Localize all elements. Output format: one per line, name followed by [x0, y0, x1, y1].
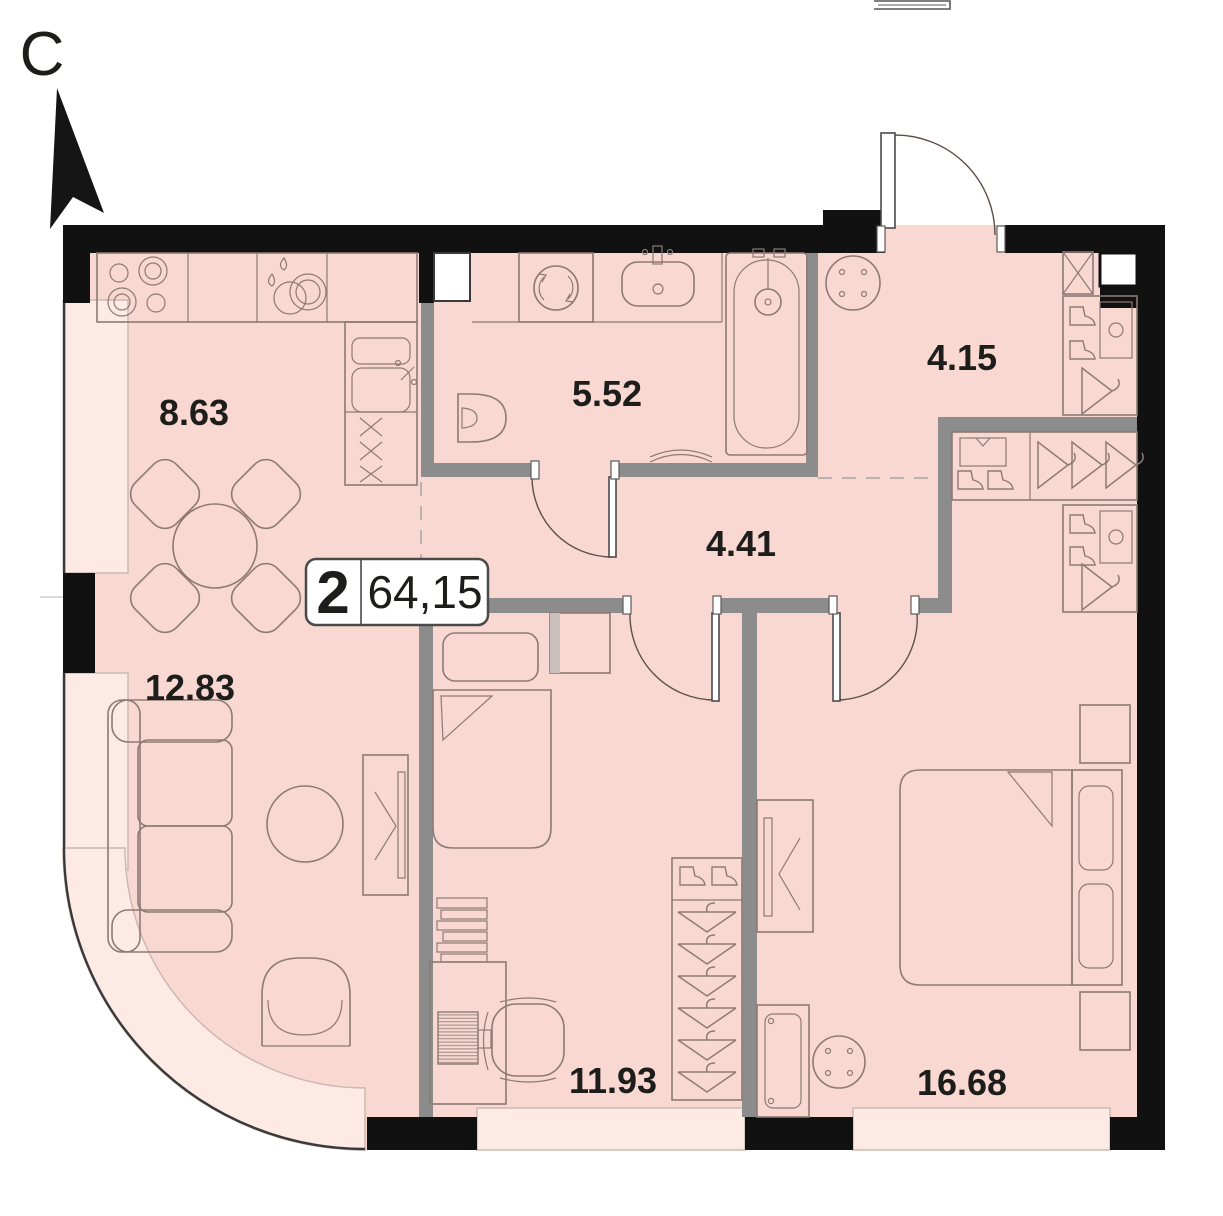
- room-label-bedroom-small: 11.93: [569, 1060, 657, 1101]
- duct-bathroom: [434, 253, 470, 301]
- north-arrow-icon: [50, 88, 104, 229]
- north-indicator: С: [20, 20, 104, 229]
- bathroom-jamb-left: [531, 461, 539, 479]
- wall-top-right: [1005, 225, 1165, 253]
- entrance-jamb-left: [877, 226, 885, 252]
- room-label-kitchen: 8.63: [159, 392, 229, 433]
- room-label-corridor: 4.41: [706, 523, 776, 564]
- room-label-entry-hall: 4.15: [927, 337, 997, 378]
- bedroom-small-jamb-right: [713, 596, 721, 614]
- neighbor-door-mark: [874, 1, 950, 9]
- duct-entry: [1100, 253, 1137, 286]
- wall-bathroom-left: [421, 303, 434, 463]
- room-label-bathroom: 5.52: [572, 373, 642, 414]
- wall-stub-master-door: [917, 598, 952, 613]
- wall-closet-left: [938, 417, 952, 613]
- badge-room-count: 2: [316, 559, 349, 626]
- bedroom-small-door-leaf: [712, 613, 719, 701]
- floor-plan-canvas: 8.63 5.52 4.15 4.41 12.83 11.93 16.68 2 …: [0, 0, 1223, 1216]
- wall-living-bedroom: [419, 598, 433, 1117]
- room-label-bedroom-master: 16.68: [917, 1062, 1007, 1103]
- wall-bottom-3: [1110, 1117, 1165, 1150]
- wall-left-pier-mid: [63, 573, 95, 673]
- bathroom-jamb-right: [611, 461, 619, 479]
- apartment-badge: 2 64,15: [306, 559, 488, 626]
- north-letter: С: [20, 20, 65, 89]
- room-label-living: 12.83: [145, 667, 235, 708]
- laptop-icon: [438, 1012, 478, 1064]
- wall-stub-between-doors: [718, 598, 833, 613]
- window-strip-left-1: [65, 300, 128, 573]
- wall-bottom-1: [367, 1117, 477, 1150]
- wall-closet-top: [938, 417, 1137, 432]
- entrance-door-arc: [895, 135, 995, 235]
- wall-left-pier-top: [63, 225, 90, 303]
- bedroom-master-jamb-right: [911, 596, 919, 614]
- wall-bathroom-bottom-left: [421, 463, 537, 477]
- wall-bathroom-bottom-right: [615, 463, 818, 477]
- wall-right: [1137, 253, 1165, 1150]
- bedroom-master-jamb-left: [829, 596, 837, 614]
- closet-shaded: [550, 613, 610, 673]
- window-strip-bedroom-small: [477, 1108, 745, 1150]
- bedroom-master-door-leaf: [833, 613, 840, 701]
- floor-plan-page: 8.63 5.52 4.15 4.41 12.83 11.93 16.68 2 …: [0, 0, 1223, 1216]
- badge-total-area: 64,15: [367, 566, 482, 618]
- wall-entrance-pier: [823, 210, 883, 253]
- wall-bottom-2: [745, 1117, 853, 1150]
- entrance-jamb-right: [997, 226, 1005, 252]
- bedroom-small-jamb-left: [623, 596, 631, 614]
- bathroom-door-leaf: [609, 477, 616, 557]
- wall-duct-side: [419, 253, 434, 303]
- wall-bedrooms-divider: [742, 613, 757, 1117]
- entrance-door-leaf: [881, 133, 895, 228]
- window-strip-bedroom-master: [853, 1108, 1110, 1150]
- bookshelf: [437, 898, 487, 962]
